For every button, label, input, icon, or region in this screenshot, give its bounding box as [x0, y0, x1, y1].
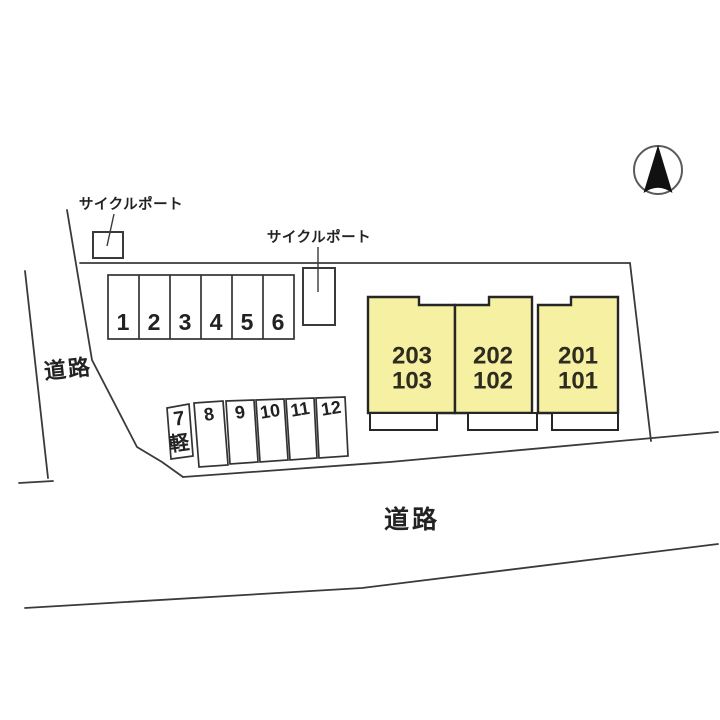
- right-property-boundary: [630, 263, 651, 441]
- cycle-port-1-box: [93, 232, 123, 258]
- parking-row-2: 7 軽 8 9 10 11 12: [167, 397, 348, 467]
- stall-12-number: 12: [320, 397, 343, 420]
- cycle-port-2-label: サイクルポート: [267, 228, 371, 246]
- road-label-left: 道路: [43, 354, 93, 384]
- unit-101-label: 101: [558, 367, 598, 394]
- unit-201-label: 201: [558, 342, 598, 369]
- stall-3-number: 3: [179, 309, 192, 335]
- parking-row-1: 1 2 3 4 5 6: [108, 275, 294, 339]
- entrance-porch-1: [370, 413, 437, 430]
- cycle-port-2-box: [303, 268, 335, 325]
- stall-2-number: 2: [148, 309, 161, 335]
- stall-4-number: 4: [210, 309, 223, 335]
- compass-needle: [644, 145, 673, 193]
- buildings: 203 103 202 102 201 101: [368, 297, 618, 430]
- site-plan-drawing: サイクルポート サイクルポート 1 2 3 4 5 6 7 軽 8 9 10 1…: [0, 0, 720, 720]
- stall-5-number: 5: [241, 309, 254, 335]
- road-label-bottom: 道路: [384, 505, 440, 534]
- north-arrow-icon: [634, 145, 682, 194]
- cycle-port-1-label: サイクルポート: [79, 195, 183, 213]
- unit-103-label: 103: [392, 367, 432, 394]
- entrance-porch-3: [552, 413, 618, 430]
- unit-203-label: 203: [392, 342, 432, 369]
- left-road-foot-line: [19, 481, 53, 483]
- bottom-road-lower-edge: [25, 544, 718, 608]
- unit-202-label: 202: [473, 342, 513, 369]
- stall-11-number: 11: [289, 398, 311, 421]
- unit-102-label: 102: [473, 367, 513, 394]
- stall-10-number: 10: [259, 400, 282, 423]
- entrance-porch-2: [468, 413, 537, 430]
- left-property-boundary: [67, 210, 183, 477]
- site-plan: サイクルポート サイクルポート 1 2 3 4 5 6 7 軽 8 9 10 1…: [0, 0, 720, 720]
- stall-6-number: 6: [272, 309, 285, 335]
- stall-1-number: 1: [117, 309, 130, 335]
